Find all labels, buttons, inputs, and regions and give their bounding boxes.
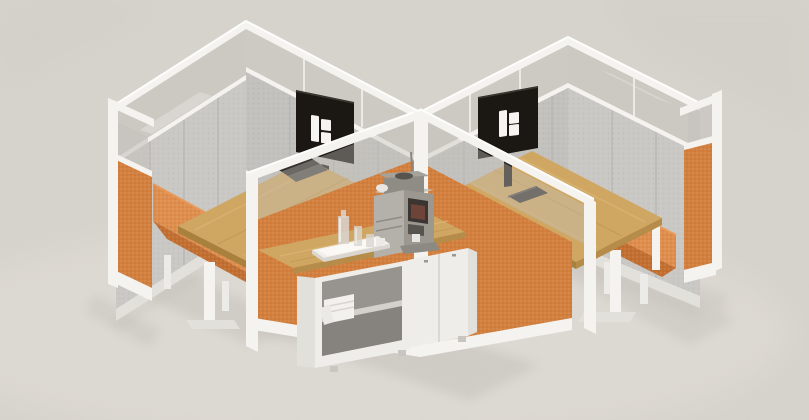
small-cup (376, 238, 385, 246)
glass (354, 226, 362, 246)
cabinet-foot (330, 366, 338, 372)
shelf-side (297, 276, 315, 368)
cabinet-doors (408, 248, 468, 348)
bench-leg (164, 255, 171, 289)
glass (366, 234, 374, 247)
desk-leg (204, 262, 215, 322)
desk-leg (652, 224, 660, 270)
office-cubicle-render (0, 0, 809, 420)
door-handle (424, 260, 428, 263)
cabinet-foot (398, 350, 406, 356)
desk-foot (186, 320, 240, 329)
bean-lid (395, 173, 413, 180)
cabinet-foot (458, 336, 466, 342)
screen-post (246, 170, 258, 352)
desk-leg (610, 250, 621, 314)
coffee-cup (412, 234, 420, 242)
door-handle (452, 254, 456, 257)
render-canvas (0, 0, 809, 420)
screen-post (584, 196, 596, 334)
bench-leg (222, 281, 229, 311)
milk-jug (376, 184, 388, 192)
bench-leg (640, 274, 648, 304)
